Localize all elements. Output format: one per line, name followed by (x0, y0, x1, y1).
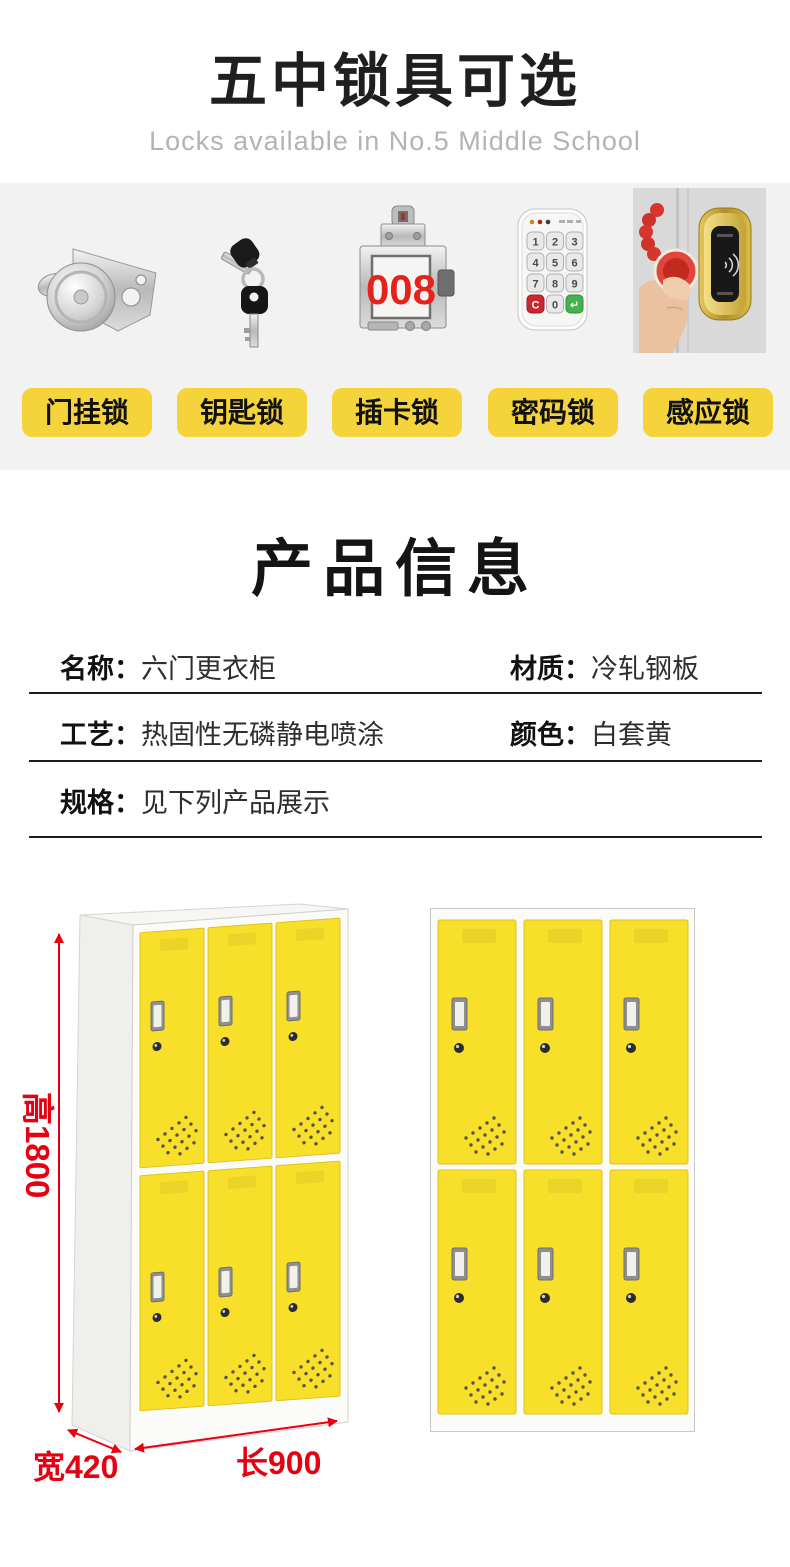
divider (29, 760, 762, 762)
lock-type-label-hasp: 门挂锁 (22, 388, 152, 437)
product-info-title: 产品信息 (0, 518, 790, 608)
spec-value-material: 冷轧钢板 (591, 654, 699, 684)
page-title: 五中锁具可选 (0, 42, 790, 122)
spec-row: 规格：见下列产品展示 (0, 782, 790, 824)
divider (29, 692, 762, 694)
spec-label-material: 材质： (510, 654, 591, 684)
spec-label-color: 颜色： (510, 720, 591, 750)
led-indicator (546, 220, 551, 225)
keypad-key-label: 4 (532, 258, 539, 270)
keypad-key-label: 6 (571, 258, 577, 270)
card-lock-icon: 008 (348, 200, 458, 340)
locks-section: 008 123456789C0↵ (0, 183, 790, 470)
width-dimension-label: 宽420 (33, 1449, 118, 1485)
height-dimension-label: 高1800 (19, 1092, 56, 1198)
lock-type-label-rfid: 感应锁 (643, 388, 773, 437)
spec-value-name: 六门更衣柜 (141, 654, 276, 684)
lock-type-label-keypad: 密码锁 (488, 388, 618, 437)
keypad-key-label: 9 (571, 279, 577, 291)
keypad-lock-icon: 123456789C0↵ (515, 208, 590, 333)
spec-label-name: 名称： (60, 654, 141, 684)
spec-row: 工艺：热固性无磷静电喷涂 颜色：白套黄 (0, 714, 790, 756)
spec-row: 名称：六门更衣柜 材质：冷轧钢板 (0, 648, 790, 690)
lock-type-label-card: 插卡锁 (332, 388, 462, 437)
keypad-key-label: 0 (552, 300, 558, 312)
led-indicator (538, 220, 543, 225)
locker-front-view (430, 908, 695, 1432)
spec-label-process: 工艺： (60, 720, 141, 750)
keypad-key-label: ↵ (570, 300, 579, 312)
keypad-key-label: 7 (532, 279, 538, 291)
keypad-key-label: 2 (552, 237, 558, 249)
length-dimension-label: 长900 (236, 1445, 321, 1481)
rfid-lock-icon (633, 188, 766, 353)
key-lock-icon (205, 232, 295, 352)
keypad-key-label: 1 (532, 237, 538, 249)
spec-label-spec: 规格： (60, 788, 141, 818)
product-detail-page: 五中锁具可选 Locks available in No.5 Middle Sc… (0, 0, 790, 1567)
spec-value-spec: 见下列产品展示 (141, 788, 330, 818)
keypad-key-label: 3 (571, 237, 577, 249)
spec-value-process: 热固性无磷静电喷涂 (141, 720, 384, 750)
locker-number-display: 008 (366, 266, 436, 313)
spec-value-color: 白套黄 (591, 720, 672, 750)
divider (29, 836, 762, 838)
lock-type-label-key: 钥匙锁 (177, 388, 307, 437)
keypad-key-label: 5 (552, 258, 558, 270)
page-subtitle: Locks available in No.5 Middle School (0, 126, 790, 157)
hasp-lock-icon (18, 235, 168, 350)
keypad-key-label: 8 (552, 279, 558, 291)
keypad-key-label: C (532, 300, 540, 312)
led-indicator (530, 220, 535, 225)
